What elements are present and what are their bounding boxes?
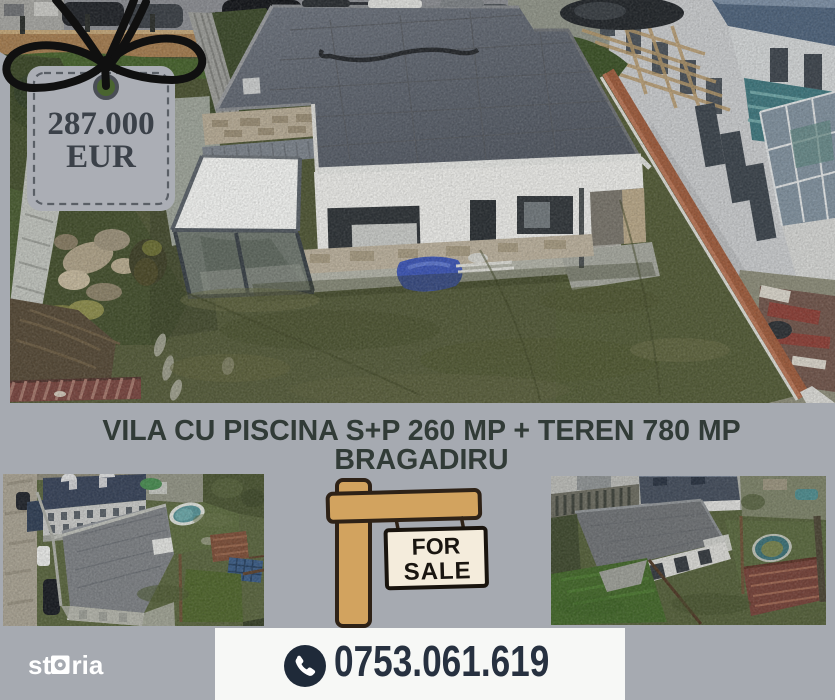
svg-text:ria: ria [72, 650, 104, 680]
svg-text:SALE: SALE [403, 557, 472, 586]
svg-text:FOR: FOR [411, 532, 461, 559]
svg-text:EUR: EUR [66, 139, 137, 175]
svg-text:287.000: 287.000 [47, 106, 154, 142]
svg-text:st: st [28, 650, 51, 680]
